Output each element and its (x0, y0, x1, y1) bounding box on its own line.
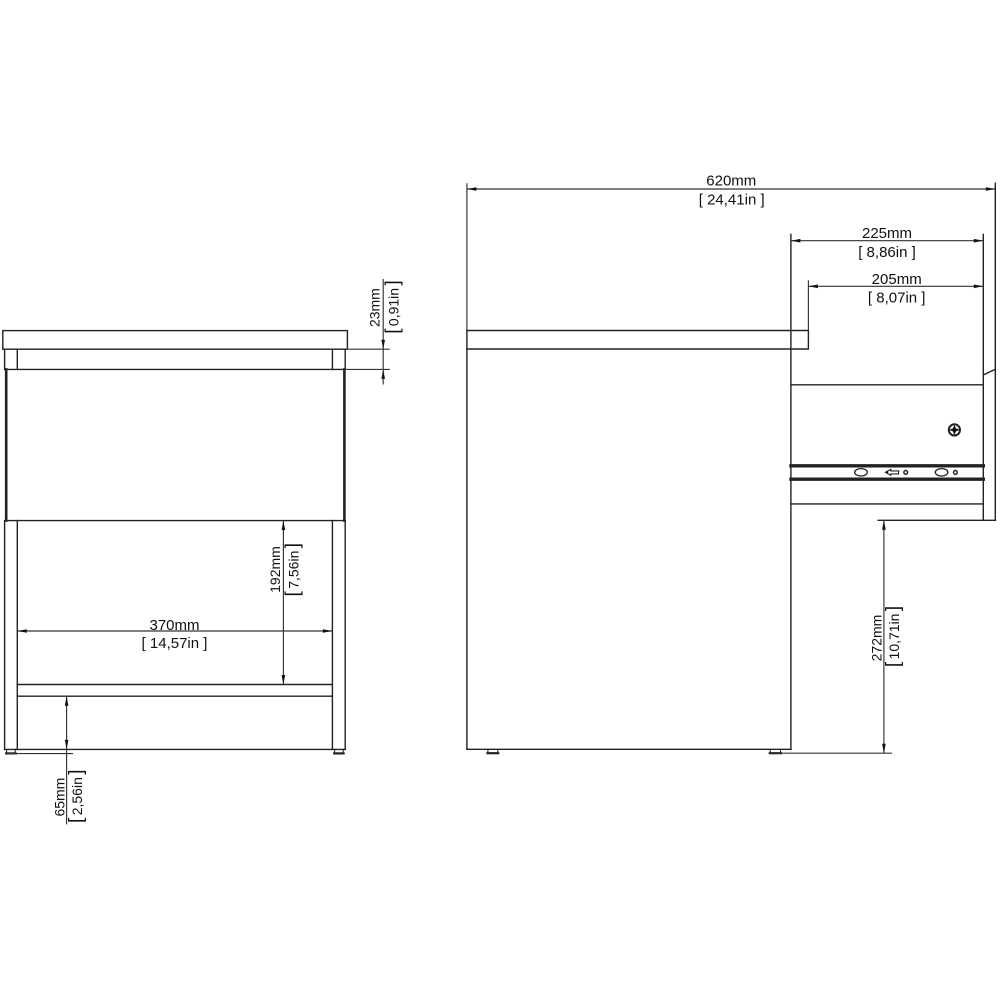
svg-text:[ 8,07in ]: [ 8,07in ] (868, 290, 926, 307)
svg-text:370mm: 370mm (149, 617, 199, 634)
svg-text:[ 24,41in ]: [ 24,41in ] (699, 192, 765, 209)
svg-text:23mm: 23mm (367, 288, 383, 327)
svg-text:205mm: 205mm (872, 271, 922, 288)
svg-text:225mm: 225mm (862, 225, 912, 242)
svg-text:[ 0,91in ]: [ 0,91in ] (382, 280, 403, 334)
svg-text:[ 14,57in ]: [ 14,57in ] (142, 635, 208, 652)
svg-text:[ 7,56in ]: [ 7,56in ] (283, 543, 304, 597)
svg-text:[ 8,86in ]: [ 8,86in ] (858, 244, 916, 261)
svg-text:192mm: 192mm (267, 546, 283, 593)
svg-text:[ 2,56in ]: [ 2,56in ] (66, 769, 87, 823)
svg-text:272mm: 272mm (869, 615, 885, 662)
svg-text:65mm: 65mm (51, 778, 67, 817)
svg-text:[ 10,71in ]: [ 10,71in ] (883, 606, 904, 667)
svg-text:620mm: 620mm (706, 173, 756, 190)
